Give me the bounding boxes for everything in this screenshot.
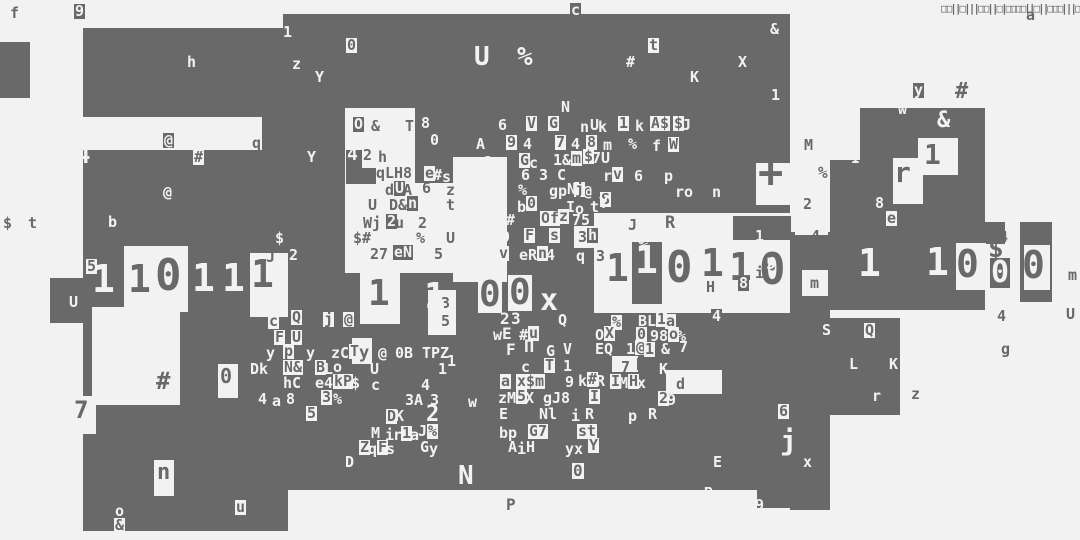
glyph: $	[3, 216, 12, 231]
glyph: N	[561, 100, 570, 115]
glyph: R	[528, 248, 537, 263]
glyph: 8	[875, 196, 884, 211]
glyph: F	[524, 228, 535, 243]
glyph: 8	[561, 391, 570, 406]
glyph: 0	[155, 254, 182, 298]
glyph: V	[526, 116, 537, 131]
glyph: N	[402, 245, 413, 260]
glyph: &	[114, 518, 125, 533]
glyph: U	[1066, 307, 1075, 322]
glyph: Y	[599, 196, 608, 211]
glyph: 1	[92, 260, 115, 298]
glyph: 1	[701, 244, 724, 282]
glyph: G	[420, 440, 429, 455]
glyph: #	[193, 150, 204, 165]
glyph: B	[704, 486, 713, 501]
glyph: r	[603, 169, 612, 184]
glyph: K	[690, 70, 699, 85]
glyph: 7	[555, 135, 566, 150]
glyph: D	[389, 198, 398, 213]
glyph: k	[598, 120, 607, 135]
glyph: o	[684, 185, 693, 200]
glyph: h	[187, 55, 196, 70]
glyph: 1	[626, 342, 635, 357]
glyph: h	[283, 376, 292, 391]
glyph: y	[266, 346, 275, 361]
glyph: y	[359, 345, 369, 362]
glyph: c	[529, 156, 538, 171]
glyph: 0	[346, 38, 357, 53]
glyph: L	[385, 166, 394, 181]
glyph: 1	[563, 359, 572, 374]
glyph: D	[250, 362, 259, 377]
glyph: R	[648, 407, 657, 422]
glyph: m	[571, 151, 582, 166]
glyph: t	[446, 198, 455, 213]
glyph: b	[108, 215, 117, 230]
glyph: k	[578, 374, 587, 389]
glyph: %	[416, 231, 425, 246]
glyph: 0	[990, 258, 1010, 288]
glyph: 6	[778, 404, 789, 419]
glyph: r	[675, 185, 684, 200]
light-block	[62, 117, 262, 150]
glyph: M	[619, 376, 628, 391]
glyph: 7	[679, 340, 688, 355]
glyph: E	[713, 455, 722, 470]
glyph: h	[378, 150, 387, 165]
glyph: %	[427, 424, 438, 439]
glyph: u	[235, 500, 246, 515]
glyph: E	[499, 407, 508, 422]
glyph: 9	[755, 498, 764, 513]
glyph: p	[283, 344, 294, 359]
glyph: @	[343, 312, 354, 327]
dark-block	[0, 42, 30, 98]
glyph: 1	[618, 116, 629, 131]
glyph: $	[659, 116, 670, 131]
glyph: 1	[222, 259, 245, 297]
glyph: 5	[766, 256, 776, 272]
glyph: 7	[74, 398, 88, 422]
glyph: &	[292, 360, 303, 375]
glyph: X	[525, 391, 534, 406]
glyph: p	[664, 169, 673, 184]
glyph: y	[565, 442, 574, 457]
glyph: 1	[283, 25, 292, 40]
glyph: I	[589, 389, 600, 404]
glyph: q	[368, 442, 377, 457]
glyph: 0	[395, 346, 404, 361]
glyph: %	[628, 137, 637, 152]
glyph: 5	[306, 406, 317, 421]
glyph: 8	[403, 166, 412, 181]
glyph: 4	[347, 146, 358, 164]
glyph: □□||□|||□□||□|□□□□||□||□□□|||□□□	[941, 3, 1080, 14]
glyph: Y	[307, 150, 316, 165]
glyph: n	[157, 462, 170, 484]
glyph: 1	[926, 243, 949, 281]
glyph: R	[585, 407, 594, 422]
glyph: A	[476, 137, 485, 152]
glyph: 9	[501, 230, 510, 245]
glyph: c	[371, 378, 380, 393]
glyph: y	[913, 83, 924, 98]
glyph: P	[431, 346, 440, 361]
glyph: R	[664, 215, 676, 232]
glyph: Y	[315, 70, 324, 85]
glyph: &	[661, 342, 670, 357]
glyph: 2	[362, 148, 373, 163]
glyph: U	[601, 151, 610, 166]
glyph: f	[438, 119, 447, 134]
glyph: O	[353, 117, 364, 132]
glyph: j	[372, 216, 381, 231]
glyph: T	[544, 358, 555, 373]
glyph: N	[539, 407, 548, 422]
glyph: Q	[558, 313, 567, 328]
glyph: 4	[523, 137, 532, 152]
glyph: Q	[604, 342, 613, 357]
glyph: 0	[429, 133, 440, 148]
glyph: 2	[803, 197, 812, 212]
glyph: %	[517, 44, 533, 70]
glyph: @	[163, 133, 174, 148]
glyph: Q	[864, 323, 875, 338]
glyph: C	[557, 168, 566, 183]
glyph: a	[272, 394, 281, 409]
glyph: p	[558, 184, 567, 199]
glyph: G	[548, 116, 559, 131]
glyph: 5	[434, 247, 443, 262]
glyph: v	[612, 167, 623, 182]
glyph: M	[507, 391, 516, 406]
dark-block	[346, 168, 376, 184]
glyph: q	[252, 136, 261, 151]
glyph: n	[407, 196, 418, 211]
glyph: e	[886, 211, 897, 226]
glyph: K	[889, 357, 898, 372]
glyph: 7	[379, 247, 388, 262]
glyph: s	[549, 228, 560, 243]
glyph: h	[587, 228, 598, 243]
glyph: U	[368, 198, 377, 213]
glyph: 1	[771, 88, 780, 103]
glyph: z	[292, 57, 301, 72]
glyph: @	[163, 185, 172, 200]
glyph: 0	[526, 196, 537, 211]
glyph: u	[395, 216, 404, 231]
glyph: C	[292, 376, 301, 391]
glyph: N	[458, 463, 474, 489]
glyph: g	[549, 184, 558, 199]
glyph: 9	[506, 135, 517, 150]
glyph: 2	[289, 248, 298, 263]
glyph: 9	[74, 4, 85, 19]
glyph: 4	[711, 309, 722, 324]
glyph: 1	[438, 362, 447, 377]
glyph: P	[505, 497, 517, 513]
glyph: $	[351, 376, 360, 391]
glyph: @	[583, 184, 592, 199]
glyph: J	[266, 250, 275, 265]
glyph: K	[794, 369, 806, 389]
glyph: z	[498, 391, 507, 406]
glyph: t	[28, 216, 37, 231]
glyph: %	[638, 237, 649, 255]
glyph: K	[659, 362, 668, 377]
glyph: 4	[76, 143, 90, 167]
glyph: m	[810, 276, 819, 291]
glyph: m	[534, 374, 545, 389]
glyph: x	[540, 286, 558, 316]
glyph: S	[483, 155, 492, 170]
glyph: T	[422, 346, 431, 361]
glyph: U	[69, 295, 78, 310]
glyph: 0	[956, 245, 979, 283]
glyph: l	[548, 407, 557, 422]
glyph: 0	[572, 463, 584, 479]
glyph: B	[404, 346, 413, 361]
glyph: V	[563, 342, 572, 357]
glyph: &	[937, 110, 950, 132]
glyph: b	[499, 426, 508, 441]
glyph: %	[333, 392, 342, 407]
glyph: U	[370, 362, 379, 377]
glyph: 9	[565, 375, 574, 390]
glyph: 4	[811, 229, 820, 244]
glyph: n	[712, 185, 721, 200]
glyph: H	[706, 280, 715, 295]
glyph: 1	[606, 249, 629, 287]
glyph: Y	[588, 438, 599, 453]
dark-block	[50, 278, 83, 323]
glyph: i	[517, 442, 526, 457]
glyph: K	[395, 409, 404, 424]
glyph: t	[648, 38, 659, 53]
light-block	[453, 157, 507, 282]
glyph: a	[500, 374, 511, 389]
glyph: 1	[368, 276, 390, 312]
glyph: 3	[321, 390, 332, 405]
glyph: #	[955, 81, 968, 103]
glyph: x	[803, 455, 812, 470]
glyph: 8	[738, 276, 749, 291]
glyph: #	[156, 369, 170, 393]
glyph: 1	[924, 141, 941, 169]
glyph: #	[478, 198, 487, 213]
glyph: k	[259, 362, 268, 377]
glyph: y	[306, 346, 315, 361]
glyph: 6	[422, 181, 431, 196]
glyph: p	[628, 409, 637, 424]
glyph: U	[446, 231, 455, 246]
glyph: b	[517, 200, 526, 215]
glyph: c	[570, 3, 581, 18]
glyph: &	[770, 22, 779, 37]
glyph: g	[1001, 342, 1010, 357]
glyph: W	[668, 137, 679, 152]
glyph: J	[418, 424, 427, 439]
glyph: 4	[999, 230, 1008, 245]
glyph: 1	[447, 354, 456, 369]
glyph: 7	[572, 213, 581, 228]
glyph: g	[543, 391, 552, 406]
glyph: w	[493, 328, 502, 343]
glyph: @	[378, 346, 387, 361]
glyph: e	[519, 248, 528, 263]
glyph: 3	[578, 230, 587, 245]
glyph: x	[637, 376, 646, 391]
glyph: s	[386, 442, 395, 457]
glyph: 1	[644, 342, 655, 357]
glyph: %	[818, 165, 828, 181]
glyph: t	[590, 200, 599, 215]
glyph: I	[851, 151, 860, 166]
glyph: 1	[128, 260, 151, 298]
glyph: X	[738, 55, 747, 70]
glyph: r	[894, 159, 911, 187]
glyph: #	[433, 168, 442, 183]
glyph: F	[506, 342, 516, 358]
glyph: 6	[420, 134, 429, 149]
glyph: i	[755, 266, 764, 281]
glyph: r	[872, 389, 881, 404]
glyph: 3	[405, 393, 414, 408]
glyph: 6	[634, 169, 643, 184]
glitch-art-canvas: f910hzYYcU%#tKX&1N□□||□|||□□||□|□□□□||□|…	[0, 0, 1080, 540]
glyph: 4	[258, 392, 267, 407]
glyph: X	[604, 326, 615, 341]
glyph: 6	[498, 118, 507, 133]
glyph: 1	[192, 259, 215, 297]
glyph: T	[405, 119, 414, 134]
glyph: 1	[755, 229, 764, 244]
glyph: L	[849, 357, 858, 372]
glyph: 3	[511, 311, 521, 327]
glyph: f	[652, 139, 661, 154]
glyph: q	[576, 249, 585, 264]
glyph: m	[1068, 268, 1077, 283]
glyph: 0	[508, 275, 532, 311]
glyph: 7	[592, 151, 601, 166]
glyph: 3	[539, 168, 548, 183]
glyph: z	[558, 209, 569, 224]
glyph: y	[429, 442, 438, 457]
glyph: D	[345, 455, 354, 470]
glyph: Π	[524, 339, 534, 356]
glyph: 2	[370, 247, 379, 262]
glyph: 4	[546, 248, 555, 263]
glyph: a	[1026, 8, 1035, 23]
glyph: U	[474, 44, 490, 70]
glyph: 4	[997, 309, 1006, 324]
glyph: 0	[1022, 246, 1045, 284]
glyph: +	[758, 152, 783, 194]
glyph: f	[10, 6, 19, 21]
glyph: #	[506, 213, 515, 228]
glyph: E	[595, 342, 604, 357]
glyph: H	[526, 440, 535, 455]
glyph: k	[635, 119, 644, 134]
glyph: $	[353, 231, 362, 246]
glyph: J	[628, 218, 637, 233]
glyph: #	[362, 231, 371, 246]
glyph: 2	[500, 311, 510, 327]
glyph: 1	[424, 279, 446, 315]
glyph: 8	[286, 392, 295, 407]
glyph: S	[822, 323, 831, 338]
glyph: J	[682, 118, 691, 133]
glyph: 0	[220, 366, 232, 386]
glyph: 9	[667, 393, 676, 408]
glyph: j	[323, 312, 334, 327]
glyph: z	[911, 387, 920, 402]
glyph: 0	[478, 277, 502, 313]
dark-block	[637, 358, 722, 370]
glyph: A	[414, 393, 423, 408]
glyph: 0	[666, 246, 693, 290]
glyph: &	[371, 119, 380, 134]
glyph: Q	[291, 310, 302, 325]
glyph: $	[275, 231, 284, 246]
glyph: c	[268, 314, 279, 329]
glyph: A	[508, 440, 517, 455]
glyph: 7	[537, 424, 548, 439]
glyph: w	[468, 395, 477, 410]
glyph: 3	[596, 249, 605, 264]
glyph: M	[804, 138, 813, 153]
glyph: 1	[858, 244, 881, 282]
glyph: x	[574, 442, 583, 457]
glyph: q	[376, 166, 385, 181]
glyph: #	[626, 55, 635, 70]
glyph: w	[898, 102, 907, 117]
glyph: &	[398, 198, 407, 213]
glyph: v	[498, 246, 509, 261]
glyph: J	[552, 391, 561, 406]
glyph: j	[780, 427, 797, 455]
glyph: d	[676, 377, 685, 392]
